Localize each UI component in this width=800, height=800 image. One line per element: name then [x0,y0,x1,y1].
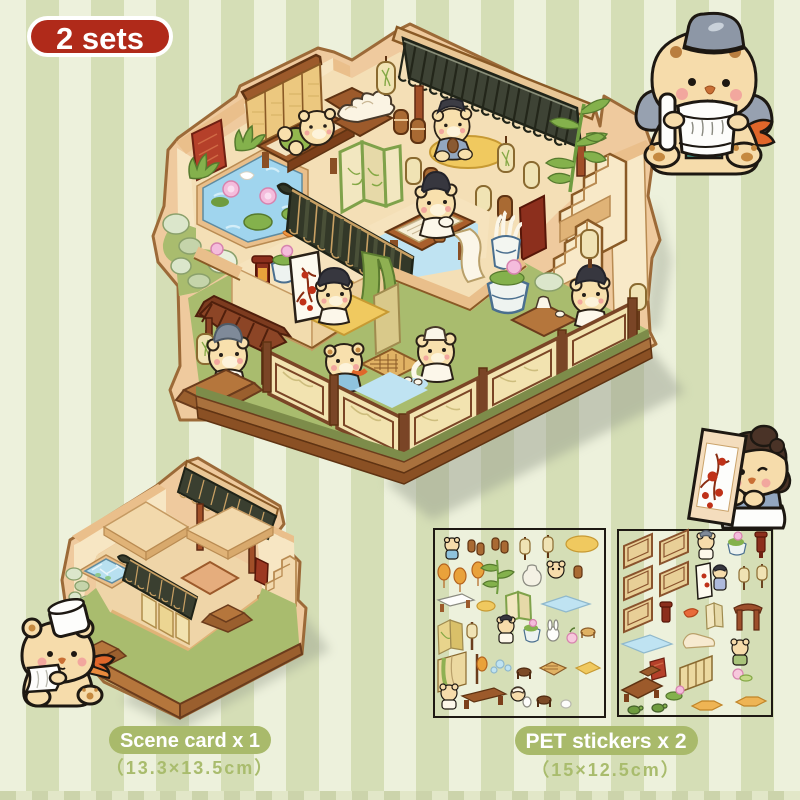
svg-text:PET stickers x 2: PET stickers x 2 [525,730,686,753]
svg-text:（13.3×13.5cm）: （13.3×13.5cm） [106,758,275,778]
svg-text:2 sets: 2 sets [56,21,144,56]
svg-text:Scene card x 1: Scene card x 1 [120,730,260,752]
svg-text:（15×12.5cm）: （15×12.5cm） [531,760,681,780]
